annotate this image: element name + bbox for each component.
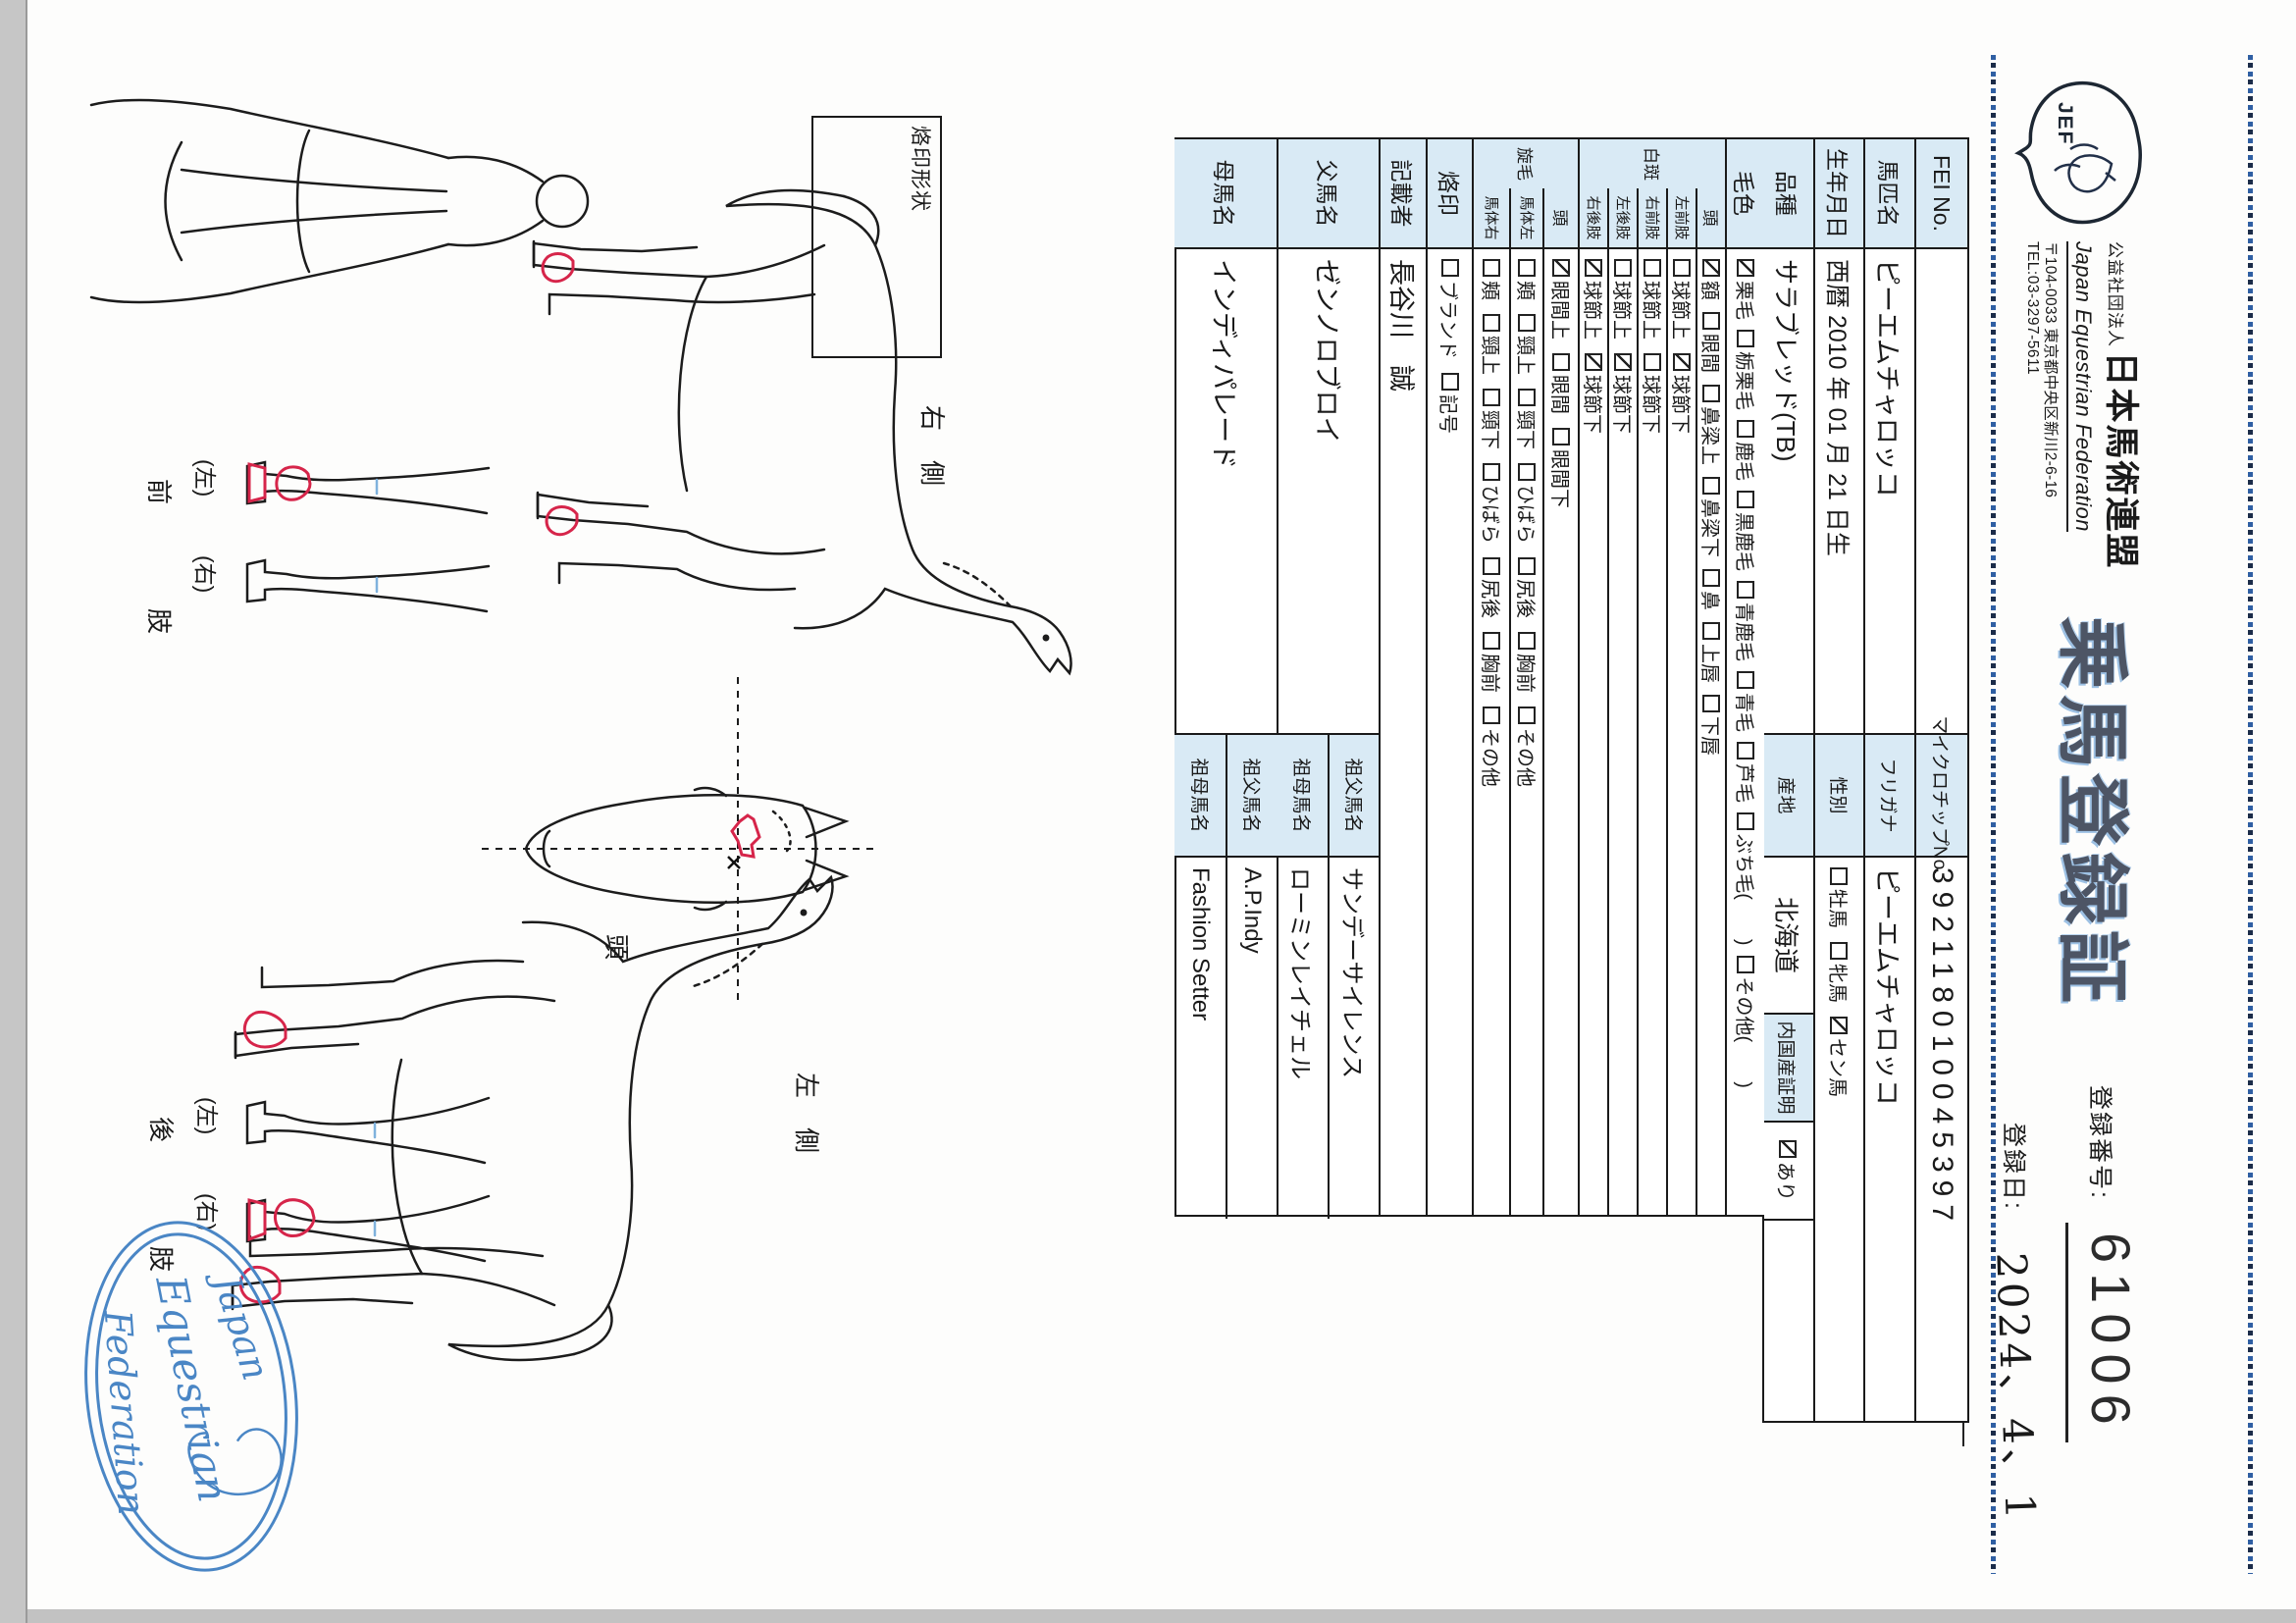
checkbox-option: その他 (1513, 707, 1541, 787)
option-label: 尻後 (1478, 579, 1506, 618)
decorative-dotted-rule-top (2248, 55, 2253, 1574)
checkbox-option: 額 (1697, 259, 1726, 300)
empty-checkbox-icon (1738, 742, 1755, 759)
empty-checkbox-icon (1553, 428, 1571, 445)
option-label: ぶち毛( ) (1732, 834, 1760, 946)
empty-checkbox-icon (1519, 314, 1537, 332)
table-row-markings-right-hind: 右後肢 球節上球節下 (1579, 188, 1608, 1215)
checkbox-option: あり (1774, 1140, 1802, 1201)
birth-date-label: 生年月日 (1815, 139, 1863, 247)
empty-checkbox-icon (1484, 314, 1501, 332)
sire-grandsire-row: 祖父馬名 サンデーサイレンス (1329, 733, 1380, 1219)
coat-color-options: 栗毛栃栗毛鹿毛黒鹿毛青鹿毛青毛芦毛ぶち毛( )その他( ) (1728, 247, 1765, 1217)
checked-checkbox-icon (1586, 259, 1603, 277)
checkbox-option: 頸下 (1478, 389, 1506, 449)
table-row-fei: FEI No. マイクロチップNo. 392118010045397 (1914, 139, 1967, 1421)
brand-options: ブランド記号 (1429, 247, 1473, 1217)
checked-checkbox-icon (1553, 259, 1571, 277)
option-label: 記号 (1436, 394, 1465, 434)
option-label: 球節下 (1609, 375, 1638, 434)
checked-checkbox-icon (1831, 1017, 1849, 1034)
option-label: 球節上 (1580, 281, 1608, 340)
checkbox-option: 尻後 (1478, 557, 1506, 618)
option-label: 頸下 (1478, 410, 1506, 449)
registration-number-label: 登録番号: (2084, 1085, 2119, 1200)
checkbox-option: 頬 (1513, 259, 1541, 300)
table-row-breed: 品種 サラブレッド(TB) 産地 北海道 内国産証明 あり (1762, 139, 1813, 1421)
white-markings-group-label: 白斑 (1579, 139, 1726, 188)
option-label: 眼間 (1697, 334, 1726, 373)
breed-row-empty-cell (1762, 1219, 1813, 1425)
checkbox-option: ひばら (1513, 463, 1541, 544)
logo-horse-rider-mark (2055, 145, 2115, 192)
checkbox-option: 眼間 (1547, 353, 1576, 414)
empty-checkbox-icon (1674, 259, 1692, 277)
markings-right-hind-options: 球節上球節下 (1581, 247, 1608, 1217)
option-label: 額 (1697, 281, 1726, 300)
table-row-birth-date: 生年月日 西暦 2010 年 01 月 21 日生 性別 牡馬牝馬セン馬 (1813, 139, 1863, 1421)
option-label: 下唇 (1697, 716, 1726, 756)
whorls-group-label: 旋毛 (1473, 139, 1579, 188)
domestic-certificate-label: 内国産証明 (1762, 1013, 1813, 1121)
scan-edge-right (0, 1609, 2296, 1623)
empty-checkbox-icon (1703, 312, 1721, 330)
option-label: 青毛 (1732, 693, 1760, 732)
checkbox-option: 青毛 (1732, 671, 1760, 732)
empty-checkbox-icon (1484, 259, 1501, 277)
checkbox-option: 鼻梁上 (1697, 385, 1726, 465)
checkbox-option: セン馬 (1825, 1017, 1853, 1097)
checked-checkbox-icon (1703, 259, 1721, 277)
table-row-whorls-body-left: 馬体左 頬頸上頸下ひばら尻後胸前その他 (1510, 188, 1543, 1215)
empty-checkbox-icon (1553, 353, 1571, 371)
empty-checkbox-icon (1644, 259, 1662, 277)
checkbox-option: 尻後 (1513, 557, 1541, 618)
certificate-page: JEF 公益社団法人 日本馬術連盟 Japan Equestrian Feder… (0, 0, 2296, 1623)
option-label: 黒鹿毛 (1732, 512, 1760, 571)
right-side-view-label: 右 側 (915, 405, 952, 488)
checkbox-option: 記号 (1436, 373, 1465, 434)
option-label: 球節下 (1668, 375, 1696, 434)
checkbox-option: 頸上 (1513, 314, 1541, 375)
org-telephone: TEL:03-3297-5611 (2023, 241, 2041, 595)
checkbox-option: 球節上 (1639, 259, 1667, 340)
empty-checkbox-icon (1519, 707, 1537, 724)
hindleg-left-paren: (左) (192, 1097, 226, 1134)
org-name-english: Japan Equestrian Federation (2066, 241, 2096, 532)
empty-checkbox-icon (1441, 259, 1459, 277)
certificate-title: 乗馬登録証 (2046, 616, 2151, 1009)
scanned-registration-certificate: { "header": { "logo_text": "JEF", "org_s… (0, 0, 2296, 1623)
checked-checkbox-icon (1738, 259, 1755, 277)
origin-value: 北海道 (1762, 856, 1813, 1013)
dam-grandsire-row: 祖父馬名 A.P.Indy (1226, 733, 1278, 1219)
horse-identity-table-lower: 毛色 栗毛栃栗毛鹿毛黒鹿毛青鹿毛青毛芦毛ぶち毛( )その他( ) 白斑 頭 額眼… (1175, 137, 1765, 1217)
option-label: その他( ) (1732, 977, 1760, 1088)
breed-label: 品種 (1762, 139, 1813, 247)
empty-checkbox-icon (1738, 812, 1755, 830)
sex-options: 牡馬牝馬セン馬 (1815, 856, 1863, 1425)
option-label: 尻後 (1513, 579, 1541, 618)
empty-checkbox-icon (1441, 373, 1459, 391)
empty-checkbox-icon (1484, 632, 1501, 650)
option-label: 牡馬 (1825, 889, 1853, 928)
markings-head-label: 頭 (1698, 188, 1726, 247)
option-label: その他 (1513, 728, 1541, 787)
checkbox-option: ぶち毛( ) (1732, 812, 1760, 946)
dam-grandsire-label: 祖父馬名 (1228, 733, 1278, 856)
empty-checkbox-icon (1484, 389, 1501, 406)
dam-granddam-value: Fashion Setter (1175, 856, 1226, 1219)
recorder-value: 長谷川 誠 (1382, 247, 1427, 1217)
checkbox-option: その他 (1478, 707, 1506, 787)
empty-checkbox-icon (1738, 491, 1755, 508)
origin-label: 産地 (1762, 733, 1813, 856)
option-label: ひばら (1478, 485, 1506, 544)
org-address: 〒104-0033 東京都中央区新川2-6-16 (2041, 241, 2062, 595)
checkbox-option: 胸前 (1513, 632, 1541, 693)
option-label: 芦毛 (1732, 763, 1760, 803)
option-label: 鼻 (1697, 591, 1726, 610)
option-label: 頬 (1513, 281, 1541, 300)
empty-checkbox-icon (1519, 463, 1537, 481)
foreleg-left-paren: (左) (190, 459, 224, 497)
checkbox-option: 頸上 (1478, 314, 1506, 375)
checkbox-option: 芦毛 (1732, 742, 1760, 803)
option-label: 眼間下 (1547, 449, 1576, 508)
option-label: 眼間 (1547, 375, 1576, 414)
option-label: 頸上 (1513, 336, 1541, 375)
sire-granddam-label: 祖母馬名 (1278, 733, 1329, 856)
option-label: 鹿毛 (1732, 442, 1760, 481)
registration-number-underline (2065, 1223, 2068, 1442)
empty-checkbox-icon (1831, 942, 1849, 960)
dam-granddam-row: 祖母馬名 Fashion Setter (1175, 733, 1226, 1219)
federation-ink-stamp: Japan Equestrian Federation (57, 1202, 325, 1590)
empty-checkbox-icon (1738, 671, 1755, 689)
option-label: 球節下 (1639, 375, 1667, 434)
table-row-markings-right-fore: 右前肢 球節上球節下 (1638, 188, 1667, 1215)
whorls-body-right-options: 頬頸上頸下ひばら尻後胸前その他 (1475, 247, 1510, 1217)
registration-number-value: 61006 (2079, 1232, 2143, 1435)
checkbox-option: 鼻梁下 (1697, 477, 1726, 557)
markings-left-fore-options: 球節上球節下 (1669, 247, 1696, 1217)
dam-value: インディパレード (1175, 247, 1278, 733)
domestic-certificate-options: あり (1762, 1121, 1813, 1219)
option-label: その他 (1478, 728, 1506, 787)
top-view-horse-diagram (83, 44, 603, 378)
option-label: ひばら (1513, 485, 1541, 544)
recorder-label: 記載者 (1382, 139, 1427, 247)
checked-checkbox-icon (1615, 353, 1633, 371)
checkbox-option: ブランド (1436, 259, 1465, 359)
option-label: 頬 (1478, 281, 1506, 300)
option-label: あり (1774, 1162, 1802, 1201)
fei-label: FEI No. (1916, 139, 1967, 247)
checkbox-option: 青鹿毛 (1732, 581, 1760, 661)
table-row-brand: 烙印 ブランド記号 (1427, 139, 1473, 1215)
table-row-dam: 母馬名 インディパレード 祖父馬名 A.P.Indy 祖母馬名 Fashion … (1175, 139, 1278, 1215)
table-row-recorder: 記載者 長谷川 誠 (1380, 139, 1427, 1215)
empty-checkbox-icon (1519, 389, 1537, 406)
foreleg-pair-label: 前 肢 (142, 479, 179, 673)
dam-label: 母馬名 (1175, 139, 1278, 247)
empty-checkbox-icon (1484, 557, 1501, 575)
empty-checkbox-icon (1703, 477, 1721, 495)
jef-logo: JEF (2017, 71, 2149, 236)
dam-granddam-label: 祖母馬名 (1175, 733, 1226, 856)
checkbox-option: 球節上 (1580, 259, 1608, 340)
markings-left-fore-label: 左前肢 (1669, 188, 1696, 247)
option-label: 青鹿毛 (1732, 602, 1760, 661)
option-label: 栃栗毛 (1732, 351, 1760, 410)
sex-label: 性別 (1815, 733, 1863, 856)
option-label: 上唇 (1697, 644, 1726, 683)
checkbox-option: 黒鹿毛 (1732, 491, 1760, 571)
org-name: 日本馬術連盟 (2102, 351, 2140, 569)
furigana-value: ピーエムチャロッコ (1865, 856, 1914, 1425)
table-row-whorls-head: 頭 眼間上眼間眼間下 (1543, 188, 1579, 1215)
empty-checkbox-icon (1831, 867, 1849, 885)
markings-left-hind-options: 球節上球節下 (1610, 247, 1638, 1217)
markings-right-hind-label: 右後肢 (1581, 188, 1608, 247)
table-row-horse-name: 馬匹名 ピーエムチャロッコ フリガナ ピーエムチャロッコ (1863, 139, 1914, 1421)
empty-checkbox-icon (1644, 353, 1662, 371)
table-row-markings-left-hind: 左後肢 球節上球節下 (1608, 188, 1638, 1215)
option-label: 鼻梁上 (1697, 406, 1726, 465)
whorls-head-label: 頭 (1545, 188, 1579, 247)
option-label: 頸上 (1478, 336, 1506, 375)
federation-identity-block: 公益社団法人 日本馬術連盟 Japan Equestrian Federatio… (2023, 241, 2149, 595)
empty-checkbox-icon (1519, 557, 1537, 575)
birth-date-value: 西暦 2010 年 01 月 21 日生 (1815, 247, 1863, 733)
option-label: 球節上 (1609, 281, 1638, 340)
furigana-label: フリガナ (1865, 733, 1914, 856)
empty-checkbox-icon (1738, 581, 1755, 599)
checkbox-option: 眼間上 (1547, 259, 1576, 340)
horse-identity-table-upper: FEI No. マイクロチップNo. 392118010045397 馬匹名 ピ… (1762, 137, 1969, 1423)
whorls-body-left-options: 頬頸上頸下ひばら尻後胸前その他 (1512, 247, 1543, 1217)
horse-name-value: ピーエムチャロッコ (1865, 247, 1914, 733)
coat-color-label: 毛色 (1728, 139, 1765, 247)
empty-checkbox-icon (1484, 707, 1501, 724)
checkbox-option: その他( ) (1732, 956, 1760, 1088)
checkbox-option: 牡馬 (1825, 867, 1853, 928)
checked-checkbox-icon (1674, 353, 1692, 371)
org-type-label: 公益社団法人 (2106, 241, 2124, 347)
scan-edge-bottom (0, 0, 27, 1623)
checked-checkbox-icon (1779, 1140, 1797, 1158)
option-label: ブランド (1436, 281, 1465, 359)
checkbox-option: 球節上 (1668, 259, 1696, 340)
markings-right-fore-label: 右前肢 (1640, 188, 1667, 247)
empty-checkbox-icon (1738, 330, 1755, 347)
empty-checkbox-icon (1703, 622, 1721, 640)
registration-date-value: 2024、4、1 (1984, 1251, 2054, 1524)
checkbox-option: 球節下 (1609, 353, 1638, 434)
foreleg-right-paren: (右) (190, 555, 224, 593)
empty-checkbox-icon (1738, 956, 1755, 973)
option-label: 胸前 (1513, 654, 1541, 693)
checkbox-option: 栗毛 (1732, 259, 1760, 320)
sire-grandsire-value: サンデーサイレンス (1331, 856, 1380, 1219)
empty-checkbox-icon (1519, 632, 1537, 650)
stamp-text-federation: Federation (96, 1308, 154, 1517)
markings-left-hind-label: 左後肢 (1610, 188, 1638, 247)
checkbox-option: 球節下 (1668, 353, 1696, 434)
option-label: 眼間上 (1547, 281, 1576, 340)
option-label: 栗毛 (1732, 281, 1760, 320)
microchip-label: マイクロチップNo. (1916, 733, 1967, 856)
checkbox-option: 上唇 (1697, 622, 1726, 683)
table-row-markings-head: 頭 額眼間鼻梁上鼻梁下鼻上唇下唇 (1696, 188, 1726, 1215)
option-label: 鼻梁下 (1697, 498, 1726, 557)
checkbox-option: 鹿毛 (1732, 420, 1760, 481)
brand-label: 烙印 (1429, 139, 1473, 247)
checkbox-option: 牝馬 (1825, 942, 1853, 1003)
whorls-body-right-label: 馬体右 (1475, 188, 1510, 247)
front-head-view-diagram (471, 721, 863, 976)
left-side-view-label: 左 側 (790, 1073, 826, 1155)
checkbox-option: 胸前 (1478, 632, 1506, 693)
horse-name-label: 馬匹名 (1865, 139, 1914, 247)
option-label: 球節下 (1580, 375, 1608, 434)
dam-grandsire-value: A.P.Indy (1228, 856, 1278, 1219)
logo-jef-text: JEF (2054, 102, 2076, 146)
option-label: セン馬 (1825, 1038, 1853, 1097)
option-label: 胸前 (1478, 654, 1506, 693)
checkbox-option: 球節下 (1580, 353, 1608, 434)
foreleg-pair-diagram (230, 446, 493, 633)
empty-checkbox-icon (1703, 385, 1721, 402)
empty-checkbox-icon (1703, 695, 1721, 712)
markings-right-fore-options: 球節上球節下 (1640, 247, 1667, 1217)
empty-checkbox-icon (1703, 569, 1721, 587)
table-row-markings-left-fore: 左前肢 球節上球節下 (1667, 188, 1696, 1215)
option-label: 球節上 (1639, 281, 1667, 340)
checkbox-option: ひばら (1478, 463, 1506, 544)
option-label: 牝馬 (1825, 964, 1853, 1003)
sire-label: 父馬名 (1279, 139, 1380, 247)
empty-checkbox-icon (1615, 259, 1633, 277)
empty-checkbox-icon (1484, 463, 1501, 481)
table-row-sire: 父馬名 ゼンノロブロイ 祖父馬名 サンデーサイレンス 祖母馬名 ローミンレイチェ… (1278, 139, 1380, 1215)
microchip-number: 392118010045397 (1916, 856, 1967, 1425)
head-view-label: 頭 (600, 934, 636, 962)
markings-head-options: 額眼間鼻梁上鼻梁下鼻上唇下唇 (1698, 247, 1726, 1217)
empty-checkbox-icon (1519, 259, 1537, 277)
checkbox-option: 眼間下 (1547, 428, 1576, 508)
checkbox-option: 下唇 (1697, 695, 1726, 756)
checkbox-option: 球節下 (1639, 353, 1667, 434)
checked-checkbox-icon (1586, 353, 1603, 371)
sire-granddam-value: ローミンレイチェル (1278, 856, 1329, 1219)
option-label: 球節上 (1668, 281, 1696, 340)
checkbox-option: 球節上 (1609, 259, 1638, 340)
whorls-body-left-label: 馬体左 (1512, 188, 1543, 247)
checkbox-option: 眼間 (1697, 312, 1726, 373)
sire-value: ゼンノロブロイ (1279, 247, 1380, 733)
sire-granddam-row: 祖母馬名 ローミンレイチェル (1278, 733, 1329, 1219)
checkbox-option: 頸下 (1513, 389, 1541, 449)
breed-value: サラブレッド(TB) (1762, 247, 1813, 733)
checkbox-option: 鼻 (1697, 569, 1726, 610)
sire-grandsire-label: 祖父馬名 (1331, 733, 1380, 856)
red-marking-left-foreleg (249, 464, 310, 501)
option-label: 頸下 (1513, 410, 1541, 449)
red-star-marking (732, 815, 759, 857)
empty-checkbox-icon (1738, 420, 1755, 438)
registration-date-label: 登録日: (1998, 1123, 2033, 1211)
checkbox-option: 栃栗毛 (1732, 330, 1760, 410)
whorls-head-options: 眼間上眼間眼間下 (1545, 247, 1579, 1217)
table-row-coat-color: 毛色 栗毛栃栗毛鹿毛黒鹿毛青鹿毛青毛芦毛ぶち毛( )その他( ) (1726, 139, 1765, 1215)
checkbox-option: 頬 (1478, 259, 1506, 300)
fei-value-empty (1916, 247, 1967, 733)
table-row-whorls-body-right: 馬体右 頬頸上頸下ひばら尻後胸前その他 (1473, 188, 1510, 1215)
stamp-text-japan: Japan (203, 1263, 278, 1385)
